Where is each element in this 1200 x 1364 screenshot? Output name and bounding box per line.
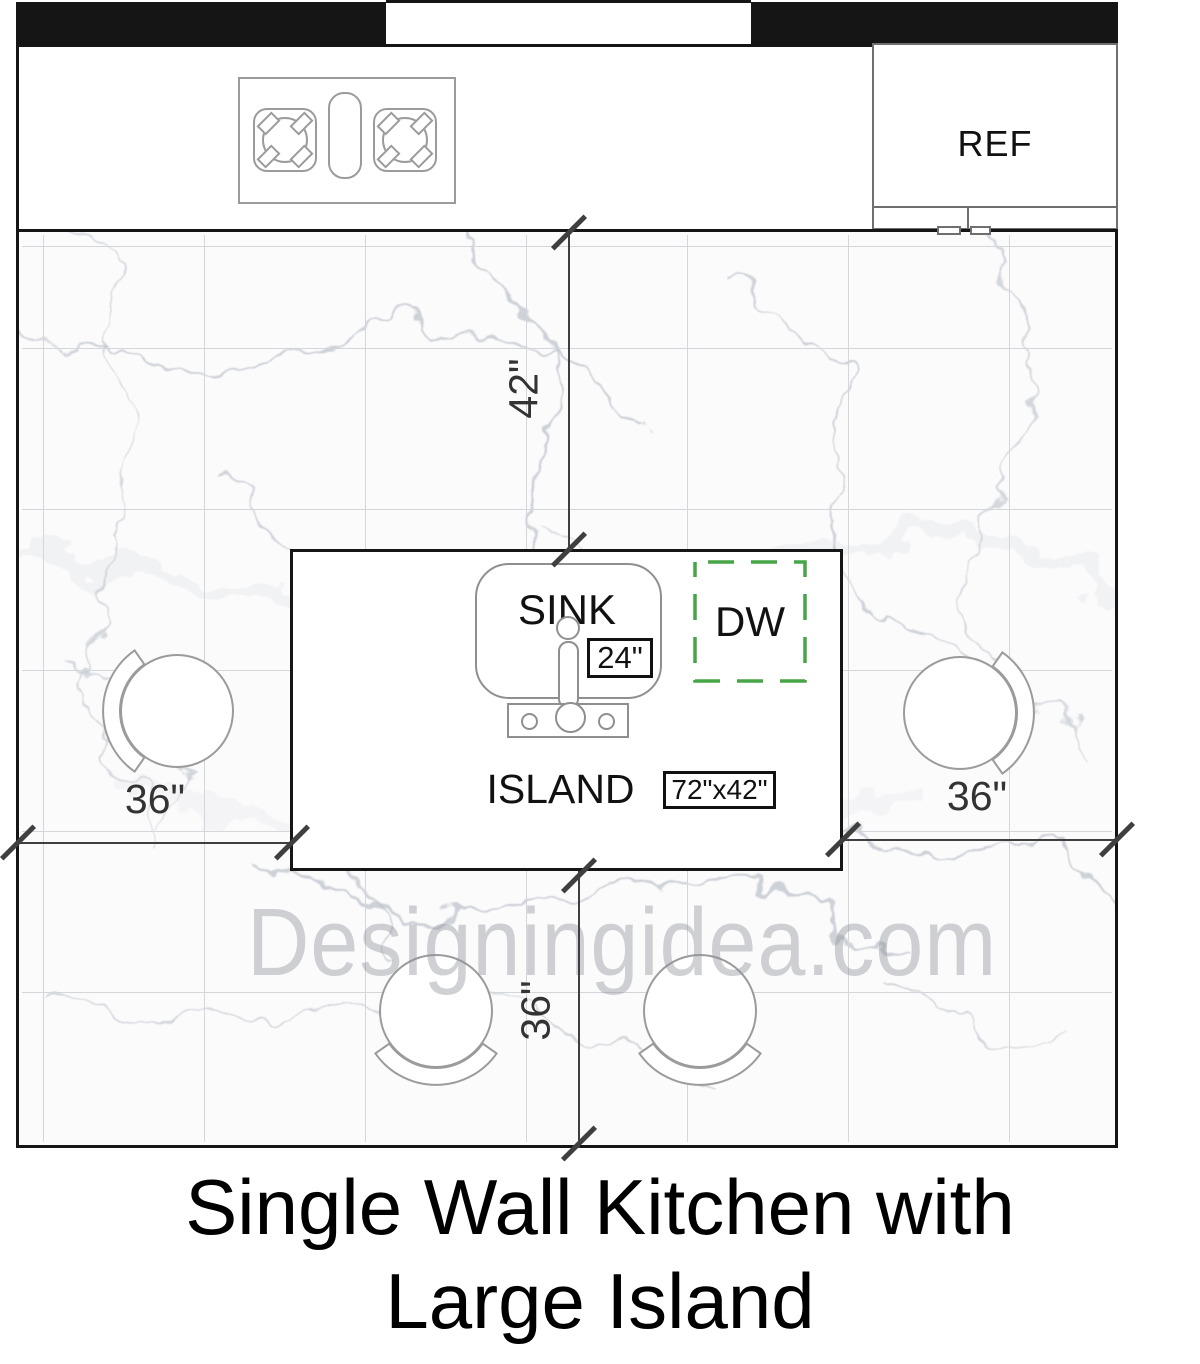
dim-line-bottom <box>578 871 580 1148</box>
island-size-badge: 72"x42" <box>663 771 776 809</box>
dim-line-right <box>843 839 1117 841</box>
dim-label-left: 36" <box>105 776 205 823</box>
watermark: Designingidea.com <box>247 888 949 998</box>
dishwasher-label: DW <box>693 598 807 646</box>
sink-width-badge: 24" <box>587 638 653 678</box>
door-divider <box>967 208 969 228</box>
window-frame <box>386 0 751 3</box>
cooktop-center-panel <box>328 92 362 179</box>
burner-left-icon <box>253 108 317 172</box>
sink-drain-icon <box>556 616 580 640</box>
faucet-base-icon <box>507 703 629 738</box>
dim-line-top <box>568 232 570 550</box>
faucet-knob-right <box>598 713 615 730</box>
island-label: ISLAND <box>468 766 653 813</box>
counter-left-wall <box>16 45 19 230</box>
refrigerator-doors <box>874 206 1116 228</box>
kitchen-floor-plan: REF <box>0 0 1200 1364</box>
refrigerator-label: REF <box>874 123 1116 165</box>
dim-label-bottom: 36" <box>513 951 560 1071</box>
cooktop-icon <box>238 77 456 204</box>
dim-line-left <box>18 842 292 844</box>
page-title-line1: Single Wall Kitchen with <box>20 1168 1180 1246</box>
page-title-line2: Large Island <box>20 1262 1180 1340</box>
window <box>386 3 751 45</box>
stool-seat <box>904 657 1016 769</box>
refrigerator: REF <box>872 43 1118 230</box>
stool-seat <box>121 655 233 767</box>
burner-right-icon <box>373 108 437 172</box>
faucet-spout <box>555 702 586 733</box>
fridge-handle <box>970 226 991 235</box>
faucet-icon <box>558 641 579 709</box>
dim-label-right: 36" <box>927 773 1027 820</box>
dim-label-top: 42" <box>501 329 548 449</box>
fridge-handle <box>937 226 961 235</box>
faucet-knob-left <box>521 713 538 730</box>
